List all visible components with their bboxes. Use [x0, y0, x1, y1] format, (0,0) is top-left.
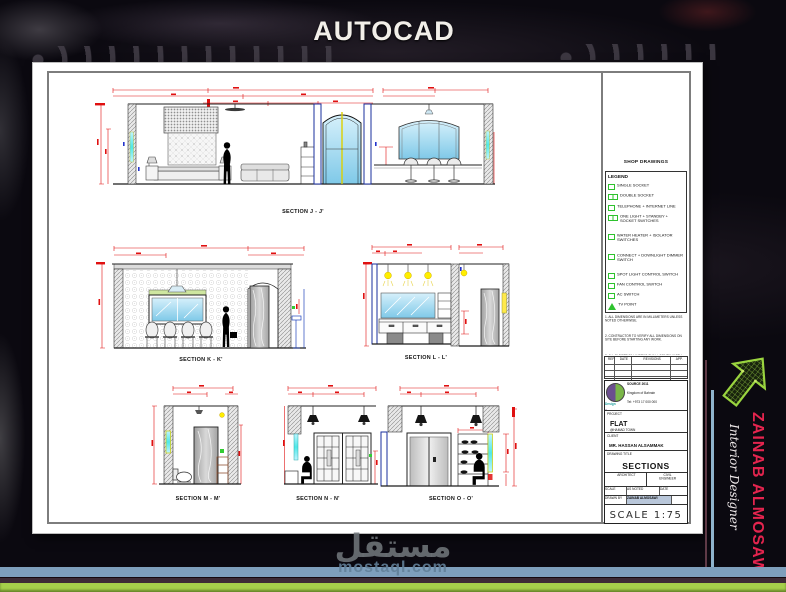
- heater-switch-icon: [608, 234, 615, 240]
- title-block: Design Source SOURCE 2011 Kingdom of Bah…: [604, 380, 688, 524]
- general-notes: 1. ALL DIMENSIONS ARE IN MILLIMETERS UNL…: [605, 315, 687, 355]
- section-m-drawing: [151, 385, 245, 489]
- dimmer-switch-icon: [608, 254, 615, 260]
- legend-item: AC SWITCH: [608, 292, 685, 301]
- legend-item: WATER HEATER + ISOLATOR SWITCHES: [608, 233, 685, 251]
- shower-head-icon: [195, 406, 203, 414]
- section-m-label: SECTION M - M': [154, 495, 242, 501]
- ceiling-fan-icon: [225, 104, 245, 111]
- vertical-accent-line-blue: [711, 390, 714, 570]
- designer-role-vertical: Interior Designer: [724, 424, 741, 554]
- telephone-internet-icon: [608, 205, 615, 211]
- drawn-label: DRAWN BY: [605, 496, 626, 500]
- watermark-site: mostaql.com: [253, 559, 533, 577]
- bar-stools: [404, 158, 461, 182]
- project-sub: @HAMAD TOWN: [610, 428, 687, 432]
- engineer-label: CIVIL ENGINEER: [659, 473, 675, 480]
- scale-date-row: SCALE AS NOTED DATE: [605, 487, 687, 496]
- section-k-drawing: [96, 244, 311, 356]
- scale-label: SCALE: [605, 487, 626, 491]
- kitchen-mirror-splash: [381, 293, 435, 318]
- bench: [285, 471, 298, 484]
- pendant-lamps-2: [415, 406, 482, 426]
- legend-item: SPOT LIGHT CONTROL SWITCH: [608, 272, 685, 281]
- logo-word-top: Design: [605, 402, 627, 406]
- cad-sheet: SECTION J - J': [32, 62, 703, 534]
- section-n-label: SECTION N - N': [274, 495, 362, 501]
- professionals-row: ARCHITECT CIVIL ENGINEER: [605, 473, 687, 487]
- briefcase: [230, 332, 237, 338]
- legend-item: ONE LIGHT + STANDBY + SOCKET SWITCHES: [608, 214, 685, 232]
- person-silhouette-seated: [301, 456, 312, 484]
- section-j-drawing: [83, 87, 503, 209]
- light-switch-icon: [608, 215, 618, 221]
- watermark: مستقل mostaql.com: [253, 530, 533, 577]
- scale-note-row: SCALE 1:75: [605, 505, 687, 525]
- marble-door: [248, 283, 278, 348]
- tv-point-icon: [608, 303, 616, 310]
- client-name: MR. HASSAN ALSAMMAK: [609, 443, 687, 448]
- legend-box: LEGEND SINGLE SOCKET DOUBLE SOCKET TELEP…: [605, 171, 687, 313]
- footer-stripe-green: [0, 583, 786, 592]
- toilet: [173, 469, 192, 482]
- company-line: Kingdom of Bahrain: [627, 391, 687, 395]
- wall-lamp-icon: [220, 413, 225, 418]
- section-o-drawing: [379, 385, 524, 489]
- client-row: CLIENT MR. HASSAN ALSAMMAK: [605, 433, 687, 451]
- scale-note: SCALE 1:75: [610, 510, 683, 521]
- sofa: [241, 164, 289, 181]
- revision-table: REF DATE REVISIONS APP.: [604, 356, 688, 379]
- section-k-label: SECTION K - K': [153, 356, 248, 362]
- section-l-label: SECTION L - L': [378, 354, 473, 360]
- side-basin: [292, 289, 304, 348]
- title-column-divider: [601, 71, 603, 524]
- marble-door-3: [194, 427, 218, 484]
- project-row: PROJECT FLAT @HAMAD TOWN: [605, 411, 687, 433]
- tall-cabinet: [438, 293, 451, 318]
- company-logo: [606, 383, 625, 402]
- kitchen-downlights: [383, 264, 433, 286]
- grunge-texture-left: [28, 46, 338, 62]
- marble-door-2: [481, 289, 499, 346]
- dining-window: [149, 290, 206, 324]
- bar-area: [374, 104, 482, 168]
- single-socket-icon: [608, 184, 615, 190]
- drawn-by-row: DRAWN BY ZAINAB ALMOSAWI: [605, 496, 687, 505]
- drawn-value: ZAINAB ALMOSAWI: [627, 496, 671, 500]
- legend-title: LEGEND: [608, 174, 685, 180]
- legend-header: SHOP DRAWINGS: [603, 159, 689, 168]
- revision-header-row: REF DATE REVISIONS APP.: [605, 357, 687, 365]
- ac-switch-icon: [608, 293, 615, 299]
- client-label: CLIENT: [607, 434, 685, 438]
- arched-door: [314, 104, 371, 184]
- company-name: SOURCE 2011: [627, 382, 687, 386]
- legend-item: TV POINT: [608, 302, 685, 311]
- project-label: PROJECT: [607, 412, 685, 416]
- spot-switch-icon: [608, 273, 615, 279]
- kitchen-counter: [379, 319, 451, 344]
- note-line: 3. ALL ELECTRICAL WORKS SHALL COMPLY WIT…: [605, 354, 687, 355]
- mashrabiya-panel: [164, 107, 218, 133]
- scale-value: AS NOTED: [627, 487, 659, 491]
- double-socket-icon: [608, 194, 618, 200]
- company-row: Design Source SOURCE 2011 Kingdom of Bah…: [605, 381, 687, 411]
- fan-switch-icon: [608, 283, 615, 289]
- bath-shelves: [217, 457, 228, 484]
- section-l-drawing: [363, 243, 515, 353]
- note-line: 1. ALL DIMENSIONS ARE IN MILLIMETERS UNL…: [605, 315, 687, 322]
- section-n-drawing: [283, 385, 383, 489]
- drawing-title-row: DRAWING TITLE SECTIONS: [605, 451, 687, 473]
- section-o-label: SECTION O - O': [407, 495, 495, 501]
- drawing-title: SECTIONS: [607, 461, 685, 471]
- architect-label: ARCHITECT: [617, 473, 633, 477]
- shelf-unit: [301, 142, 314, 184]
- portfolio-slide: AUTOCAD: [0, 0, 786, 592]
- date-label: DATE: [660, 487, 687, 491]
- vertical-accent-line-maroon: [705, 360, 707, 570]
- arrow-logo-icon: [718, 350, 774, 412]
- designer-name-vertical: ZAINAB ALMOSAWI: [744, 412, 766, 558]
- pendant-lamps: [307, 406, 370, 425]
- legend-item: FAN CONTROL SWITCH: [608, 282, 685, 291]
- company-line: Tel: +973 17 000 000: [627, 400, 687, 404]
- double-glass-door: [314, 433, 371, 484]
- legend-item: CONNECT + DOWNLIGHT DIMMER SWITCH: [608, 253, 685, 271]
- drawing-title-label: DRAWING TITLE: [607, 452, 685, 456]
- elevator-doors: [407, 433, 451, 486]
- legend-item: DOUBLE SOCKET: [608, 193, 685, 202]
- page-title: AUTOCAD: [0, 16, 768, 47]
- tufted-headboard: [168, 133, 216, 165]
- note-line: 2. CONTRACTOR TO VERIFY ALL DIMENSIONS O…: [605, 334, 687, 341]
- legend-item: TELEPHONE + INTERNET LINE: [608, 204, 685, 213]
- section-j-label: SECTION J - J': [255, 208, 350, 214]
- legend-item: SINGLE SOCKET: [608, 183, 685, 192]
